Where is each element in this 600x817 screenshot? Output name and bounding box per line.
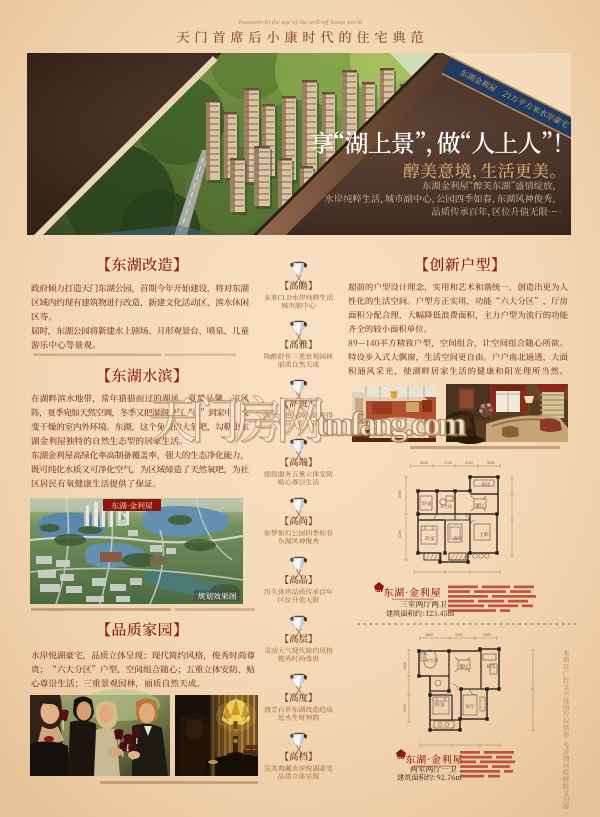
svg-text:2100: 2100 (465, 461, 473, 465)
svg-text:Treasures·In the age of the we: Treasures·In the age of the well-off hou… (238, 19, 363, 26)
svg-text:2700: 2700 (444, 461, 452, 465)
svg-text:3300: 3300 (420, 461, 428, 465)
svg-text:3600: 3600 (403, 662, 407, 670)
svg-text:F1: F1 (376, 590, 382, 596)
svg-text:tmfang.com: tmfang.com (316, 406, 466, 443)
svg-text:3300: 3300 (455, 633, 463, 637)
svg-text:D1: D1 (398, 757, 405, 763)
svg-text:3900: 3900 (403, 704, 407, 712)
svg-text:2400: 2400 (483, 633, 491, 637)
svg-text:3900: 3900 (398, 490, 402, 498)
svg-text:3600: 3600 (487, 461, 495, 465)
svg-text:2600: 2600 (425, 633, 433, 637)
svg-text:4200: 4200 (398, 530, 402, 538)
